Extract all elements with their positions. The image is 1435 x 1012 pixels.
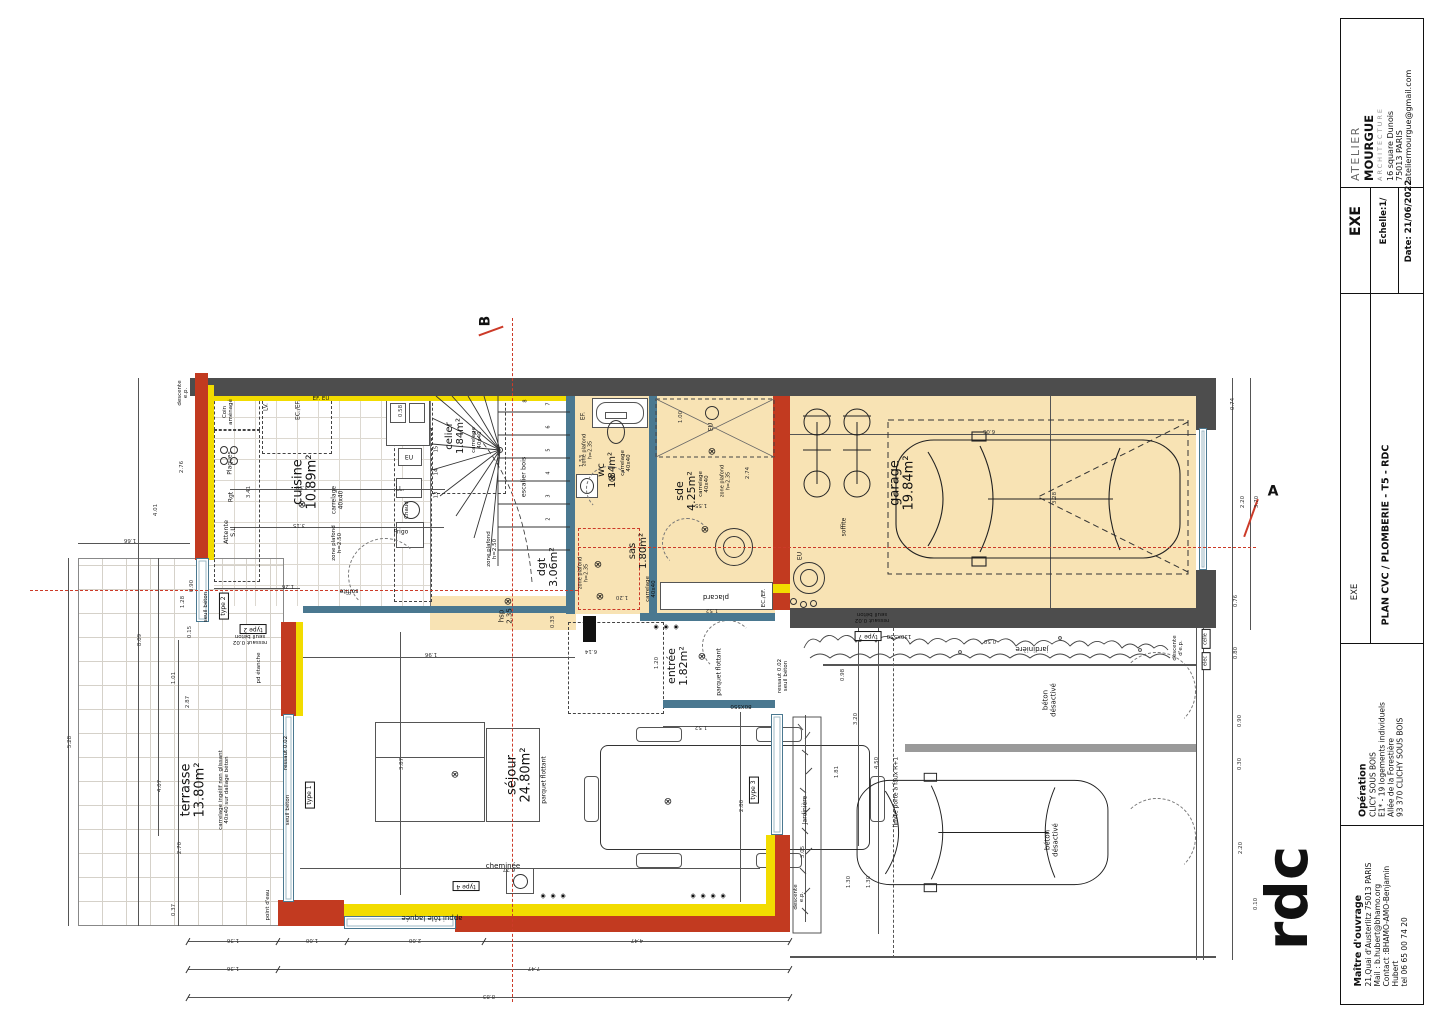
- cabinet-divider: [375, 757, 485, 758]
- plan-label: 2.70: [177, 842, 183, 854]
- room-label-entree: entrée 1.82m²: [666, 646, 690, 686]
- plan-label: 1.30: [866, 876, 872, 888]
- plan-label: 1.66: [124, 537, 136, 543]
- floor-plan-sheet: cuisine 10.89m²carrelage 40x40celier 1.8…: [0, 0, 1435, 1012]
- section-b-arrow: [478, 326, 503, 337]
- section-marker-b: B: [478, 316, 493, 327]
- plan-label: 1.53: [579, 455, 585, 467]
- plan-label: Coin aménagé: [222, 399, 234, 425]
- plan-label: 0.90: [1237, 715, 1243, 727]
- plan-label: zone plafond h=2.35: [721, 465, 732, 497]
- plan-label: 3.05: [800, 846, 806, 858]
- dim-line: [158, 558, 159, 836]
- architect-address-2: 75013 PARIS: [1395, 23, 1404, 181]
- kitchen-corner-unit: [214, 396, 260, 430]
- section-line-a-right: [578, 547, 1256, 549]
- floor-terrasse-tiles: [78, 558, 284, 926]
- plan-label: EC./EF.: [296, 400, 303, 420]
- plan-label: 0.76: [1233, 595, 1239, 607]
- small-drain: [800, 601, 807, 608]
- plan-label: EC./EF.: [761, 589, 767, 607]
- drawing-title: PLAN CVC / PLOMBERIE - T5 - RDC: [1381, 445, 1392, 626]
- light-symbol: ⊗: [708, 447, 716, 458]
- plan-label: 3.70: [1254, 496, 1260, 508]
- client-line: 21,Quai d'Austerlitz 75013 PARIS: [1364, 822, 1373, 987]
- plan-label: ressaut 0.02: [283, 736, 289, 770]
- dim-line: [1250, 378, 1251, 630]
- socket-symbol: ◉: [690, 894, 695, 901]
- plan-label: 15: [434, 446, 440, 452]
- plan-label: ressaut 0.02 seuil béton: [233, 633, 267, 645]
- tag-meter: elec: [1202, 652, 1211, 670]
- wall-red-sejour-right: [775, 835, 790, 930]
- plan-label: béton désactivé: [1042, 683, 1057, 717]
- plan-label: point d'eau: [265, 889, 271, 920]
- light-symbol: ⊗: [504, 597, 512, 608]
- plan-label: 7: [546, 402, 552, 405]
- plan-label: carrelage 40x40: [645, 576, 657, 602]
- plan-label: 3.41: [246, 486, 252, 498]
- phase-small-label: EXE: [1350, 584, 1360, 601]
- plan-label: 80X550: [730, 703, 751, 709]
- light-symbol: ⊗: [596, 592, 604, 603]
- partition-entree-top: [640, 613, 775, 621]
- plan-label: 14: [434, 469, 440, 475]
- plan-label: 1.52: [706, 607, 718, 613]
- wall-red-sejour-bottom: [455, 916, 790, 932]
- plan-label: 0.58: [398, 405, 404, 417]
- wall-exterior-top: [190, 378, 1216, 396]
- plan-label: 1.55: [695, 502, 707, 508]
- wall-red-center: [773, 396, 790, 584]
- plan-label: 7.47: [528, 965, 540, 971]
- plan-label: descente e.p.: [793, 884, 805, 909]
- plan-label: 2.80: [739, 800, 745, 812]
- plan-label: 4.47: [631, 937, 643, 943]
- tag-type-4: type 4: [452, 881, 479, 891]
- plan-label: Rgt: [229, 492, 236, 502]
- plan-label: parquet flottant: [542, 756, 549, 803]
- light-symbol: ⊗: [701, 525, 709, 536]
- socket-symbol: ◉: [550, 894, 555, 901]
- front-door-leaf: [583, 616, 596, 642]
- plan-label: 0.74: [1230, 398, 1236, 410]
- toilet: [607, 420, 625, 444]
- plan-label: 3.20: [853, 713, 859, 725]
- plan-label: 6: [546, 425, 552, 428]
- plan-label: EF. EU: [313, 396, 330, 402]
- plan-label: 1.26: [282, 583, 294, 589]
- dining-table: [600, 745, 870, 850]
- operation-title: Opération: [1358, 647, 1369, 817]
- gate-swing: [1118, 798, 1196, 876]
- site-boundary-right: [1196, 628, 1204, 960]
- plan-label: 3.50: [296, 484, 308, 490]
- plan-label: 0.50: [984, 638, 996, 644]
- plan-label: 2.20: [1238, 842, 1244, 854]
- socket-symbol: ◉: [663, 625, 668, 632]
- plan-label: carrelage 40x40: [471, 427, 483, 453]
- light-symbol: ⊗: [451, 770, 459, 781]
- date-label: Date: 21/06/2022: [1404, 180, 1414, 263]
- phase-label: EXE: [1348, 206, 1364, 236]
- wall-red-center-low: [773, 593, 790, 610]
- plan-label: 0.80: [1233, 647, 1239, 659]
- tag-type-7: type 7: [854, 631, 881, 641]
- operation-line: 93 370 CLICHY SOUS BOIS: [1396, 647, 1405, 817]
- plan-label: 8: [523, 399, 529, 402]
- plan-label: pd étanche: [256, 652, 262, 683]
- plan-label: carrelage ingélif non glissant 40x40 sur…: [218, 750, 230, 830]
- sink-bowl: [409, 403, 425, 423]
- plan-label: 0.33: [550, 616, 556, 628]
- operation-line: E1* - 19 logements individuels: [1378, 647, 1387, 817]
- client-line: Hubert: [1391, 822, 1400, 987]
- plan-label: 1.01: [171, 672, 177, 684]
- tag-type-2: type 2: [219, 592, 229, 619]
- client-block: Maître d'ouvrage 21,Quai d'Austerlitz 75…: [1353, 822, 1409, 987]
- plan-label: limite porte à faux R+1: [894, 757, 901, 827]
- light-symbol: ⊗: [698, 652, 706, 663]
- plan-label: soffite: [842, 518, 849, 537]
- tag-type-2: type 2: [239, 624, 266, 634]
- plan-label: 2.76: [179, 461, 185, 473]
- plan-label: Attente S.L: [223, 520, 237, 544]
- plan-label: zone plafond h=2.50: [331, 525, 343, 561]
- plan-label: 1.36: [227, 965, 239, 971]
- dim-line: [663, 726, 775, 727]
- room-label-garage: garage 19.84m²: [889, 455, 918, 510]
- chair: [636, 853, 682, 868]
- socket-symbol: ◉: [700, 894, 705, 901]
- toilet-tank: [605, 412, 627, 419]
- level-label: rdc: [1253, 846, 1321, 951]
- plan-label: appui tôle laquée: [401, 913, 462, 921]
- plan-label: 4.50: [874, 757, 880, 769]
- cabinet: [375, 722, 485, 822]
- scale-label: Echelle:1/: [1379, 198, 1389, 245]
- client-title: Maître d'ouvrage: [1353, 822, 1364, 987]
- plan-label: 8.83: [483, 993, 495, 999]
- plan-label: 6.14: [585, 648, 597, 654]
- plan-label: ressaut 0.02 seuil béton: [855, 611, 889, 623]
- window-sejour-right: [771, 714, 783, 835]
- plan-label: Chaud: [404, 501, 410, 519]
- plan-label: béton désactivé: [1044, 823, 1059, 857]
- plan-label: 6.05: [983, 428, 995, 434]
- architect-name-2: MOURGUE: [1362, 23, 1376, 181]
- architect-address-1: 16 square Dunois: [1386, 23, 1395, 181]
- plan-label: soffite: [340, 587, 359, 594]
- chair: [584, 776, 599, 822]
- plan-label: 5: [546, 448, 552, 451]
- plan-label: 2.00: [409, 937, 421, 943]
- door-swing: [348, 538, 422, 612]
- client-line: Mail : b.hubert@bhamo.org: [1373, 822, 1382, 987]
- plan-label: escalier bois: [520, 457, 527, 498]
- plan-label: carrelage 40x40: [620, 450, 632, 476]
- architect-block: ATELIER MOURGUE ARCHITECTURE 16 square D…: [1349, 23, 1413, 181]
- operation-line: Allée de la Forestière: [1387, 647, 1396, 817]
- plan-label: 2: [546, 517, 552, 520]
- light-symbol: ⊗: [594, 560, 602, 571]
- fireplace-flue: [513, 874, 528, 889]
- plan-label: 0.30: [1237, 758, 1243, 770]
- plan-label: 1.30: [846, 876, 852, 888]
- dim-line: [300, 657, 575, 658]
- plan-label: 1.00: [678, 411, 684, 423]
- wall-red-sejour-left: [281, 622, 296, 716]
- plan-label: seuil béton: [203, 592, 209, 622]
- site-boundary-bottom: [790, 956, 1216, 958]
- dim-line: [1232, 378, 1233, 960]
- room-label-celier: celier 1.84m²: [444, 418, 466, 454]
- plan-label: 1.00: [306, 937, 318, 943]
- section-marker-a: A: [1268, 484, 1279, 499]
- plan-label: LV.: [264, 403, 271, 411]
- partition-cuisine-bottom: [303, 606, 575, 613]
- room-label-terrasse: terrasse 13.80m²: [180, 762, 209, 817]
- garage-eu-drain-inner: [800, 569, 818, 587]
- room-label-dgt: dgt 3.06m²: [536, 547, 560, 587]
- operation-block: Opération CLICY SOUS BOIS E1* - 19 logem…: [1358, 647, 1405, 817]
- driveway-edge: [823, 664, 1197, 666]
- insulation-sejour-left: [296, 622, 303, 716]
- plan-label: 0.15: [187, 626, 193, 638]
- plan-label: zone plafond h=2.50: [486, 531, 498, 567]
- plan-label: 2.87: [185, 696, 191, 708]
- plan-label: hsp 2.35: [498, 608, 513, 624]
- bicycles: [795, 400, 885, 510]
- socket-symbol: ◉: [540, 894, 545, 901]
- plan-label: LL.: [396, 487, 405, 494]
- plan-label: EU: [405, 456, 413, 463]
- plan-label: zone plafond h=2.35: [579, 557, 590, 589]
- light-symbol: ⊗: [664, 797, 672, 808]
- room-label-sejour: séjour 24.80m²: [506, 747, 535, 802]
- plan-label: carrelage 40x40: [698, 471, 710, 497]
- section-line-b: [512, 318, 514, 1002]
- plan-label: 4.07: [157, 780, 163, 792]
- plan-label: 1.81: [834, 766, 840, 778]
- plan-label: Jardinière: [803, 796, 810, 824]
- plan-label: Frigo: [394, 530, 409, 537]
- client-line: Contact :BHAMO-AMO-Benjamin: [1382, 822, 1391, 987]
- wall-red-left: [195, 373, 208, 560]
- plan-label: 1.20: [616, 594, 628, 600]
- light-symbol: ⊗: [298, 500, 306, 511]
- plan-label: 0.10: [1253, 898, 1259, 910]
- plan-label: 3.28: [1052, 492, 1058, 504]
- dim-line: [138, 378, 139, 926]
- plan-label: EF.: [581, 412, 588, 420]
- plan-label: 4.01: [153, 504, 159, 516]
- plan-label: 1.28: [180, 596, 186, 608]
- plan-label: 3.15: [293, 522, 305, 528]
- plan-label: 5.28: [67, 736, 73, 748]
- socket-symbol: ◉: [673, 625, 678, 632]
- tag-type-3: type 3: [749, 776, 759, 803]
- plan-label: jardinière: [1015, 644, 1048, 652]
- architect-email: ateliermourgue@gmail.com: [1404, 23, 1413, 181]
- driveway-bar: [905, 744, 1196, 752]
- plan-label: 2.74: [745, 467, 751, 479]
- label-placard: placard: [703, 592, 729, 600]
- insulation-center: [773, 584, 790, 593]
- car-driveway: [850, 765, 1115, 900]
- socket-symbol: ◉: [653, 625, 658, 632]
- plan-label: 6.77: [503, 866, 515, 872]
- plan-label: descente e.p.: [177, 380, 189, 405]
- plan-label: EU: [709, 423, 716, 431]
- plan-label: descente d'e.p.: [1172, 635, 1184, 660]
- plan-label: 13: [434, 492, 440, 498]
- socket-symbol: ◉: [560, 894, 565, 901]
- tag-type-1: type 1: [305, 781, 315, 808]
- chair: [636, 727, 682, 742]
- plan-label: 2.20: [1240, 496, 1246, 508]
- plan-label: 3: [546, 494, 552, 497]
- partition-entree-bottom: [663, 700, 775, 708]
- tag-meter: celle: [1202, 629, 1211, 649]
- section-line-a-left: [30, 590, 578, 592]
- plan-label: 1.20: [654, 657, 660, 669]
- plan-label: 4: [546, 471, 552, 474]
- plan-label: 0.90: [189, 580, 195, 592]
- small-drain: [790, 598, 797, 605]
- insulation-sejour-right: [766, 835, 775, 916]
- dim-line: [300, 868, 760, 869]
- plan-label: 1.96: [425, 651, 437, 657]
- plan-label: 3.87: [399, 758, 405, 770]
- light-symbol: ⊗: [608, 474, 616, 485]
- plan-label: 0.98: [840, 669, 846, 681]
- socket-symbol: ◉: [720, 894, 725, 901]
- plan-label: parquet flottant: [717, 648, 724, 695]
- client-line: tel 06 65 00 74 20: [1400, 822, 1409, 987]
- plan-label: 1.36: [227, 937, 239, 943]
- architect-name-1: ATELIER: [1349, 23, 1362, 181]
- wall-garage-right-top: [1196, 378, 1216, 430]
- plan-label: seuil béton: [285, 795, 291, 825]
- plan-label: 1.52: [695, 724, 707, 730]
- room-label-sas: sas 1.80m²: [627, 533, 649, 569]
- plan-label: Plaques: [228, 451, 235, 474]
- plan-label: 8.09: [137, 634, 143, 646]
- insulation-left: [208, 385, 214, 560]
- plan-label: ressaut 0.02 seuil béton: [777, 659, 789, 693]
- plan-label: EU: [798, 552, 805, 560]
- architect-subtitle: ARCHITECTURE: [1376, 23, 1384, 181]
- plan-label: 130X550: [887, 633, 912, 639]
- plan-label: 0.37: [171, 904, 177, 916]
- dim-line: [78, 543, 190, 544]
- plan-label: carrelage 40x40: [331, 486, 344, 514]
- socket-symbol: ◉: [710, 894, 715, 901]
- door-swing: [702, 620, 754, 672]
- wall-red-corner-sw: [278, 900, 344, 926]
- operation-line: CLICY SOUS BOIS: [1369, 647, 1378, 817]
- small-drain: [810, 600, 817, 607]
